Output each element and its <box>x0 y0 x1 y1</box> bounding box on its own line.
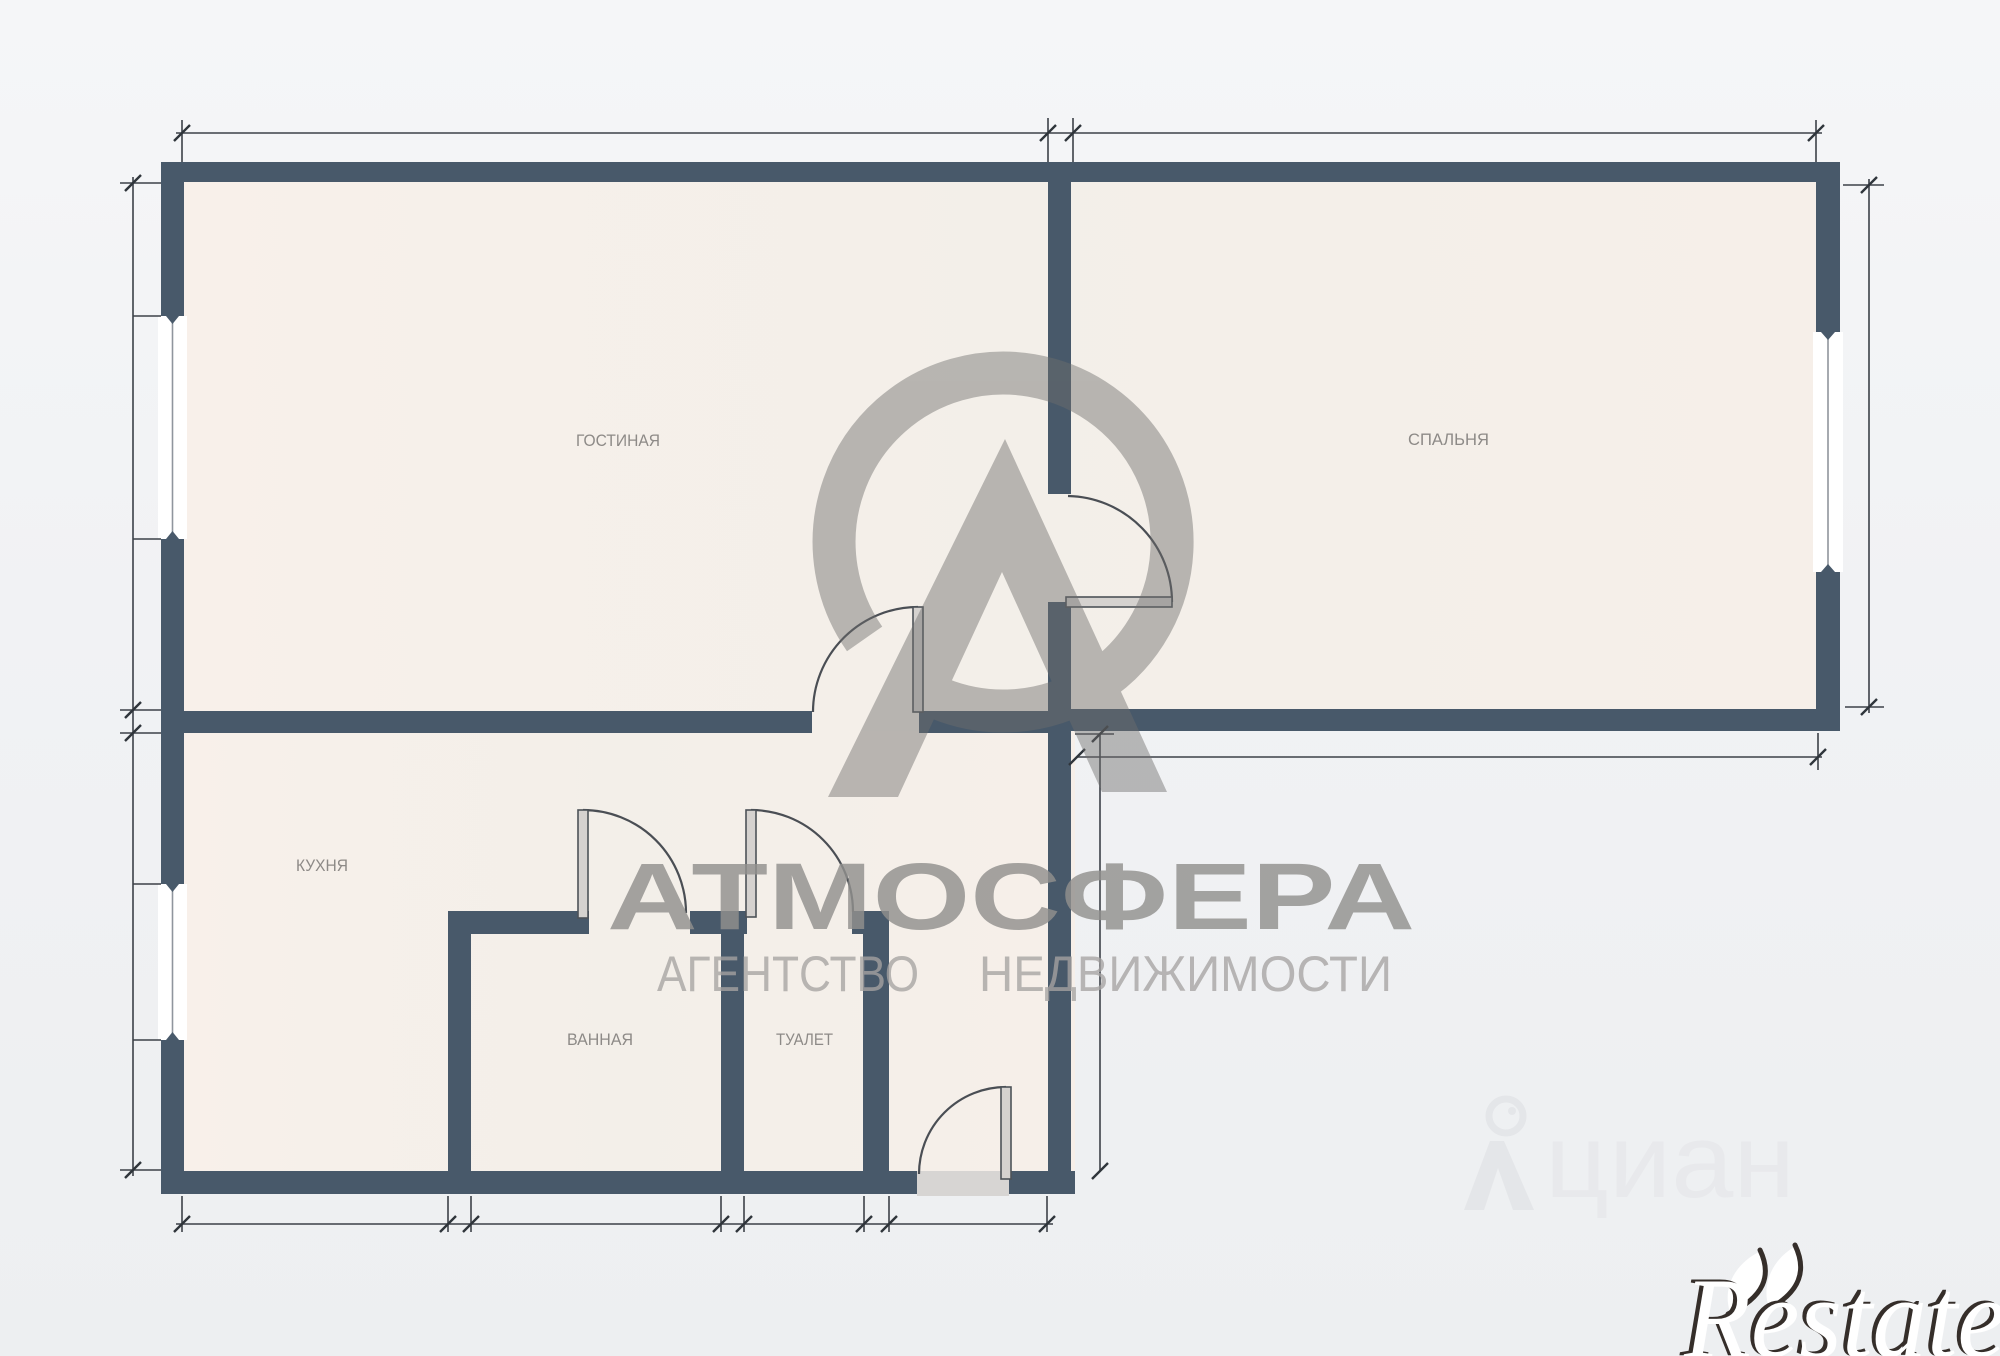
svg-text:Restate: Restate <box>1683 1255 2000 1356</box>
svg-text:ТУАЛЕТ: ТУАЛЕТ <box>776 1030 833 1049</box>
svg-text:КУХНЯ: КУХНЯ <box>296 856 348 875</box>
svg-text:ВАННАЯ: ВАННАЯ <box>567 1030 633 1049</box>
svg-text:АГЕНТСТВО: АГЕНТСТВО <box>657 946 919 1002</box>
svg-text:циан: циан <box>1545 1103 1795 1220</box>
svg-text:НЕДВИЖИМОСТИ: НЕДВИЖИМОСТИ <box>979 946 1392 1002</box>
svg-text:АТМОСФЕРА: АТМОСФЕРА <box>607 844 1415 950</box>
svg-text:ГОСТИНАЯ: ГОСТИНАЯ <box>576 431 660 450</box>
svg-text:СПАЛЬНЯ: СПАЛЬНЯ <box>1408 430 1489 449</box>
